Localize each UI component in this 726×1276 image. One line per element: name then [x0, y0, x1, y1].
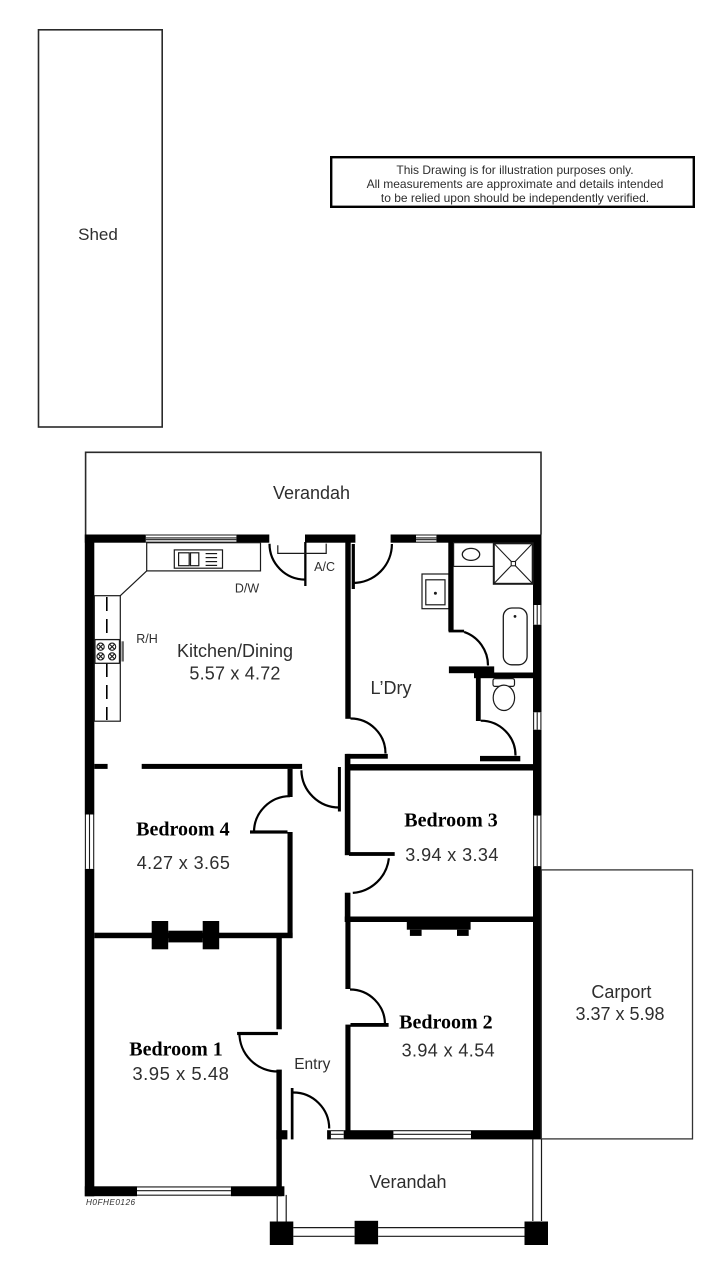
svg-text:Entry: Entry	[294, 1056, 330, 1073]
svg-text:Bedroom 2: Bedroom 2	[399, 1012, 493, 1034]
svg-text:Bedroom 1: Bedroom 1	[129, 1039, 223, 1061]
svg-text:This Drawing is for illustrati: This Drawing is for illustration purpose…	[396, 163, 633, 177]
svg-text:Verandah: Verandah	[273, 483, 350, 503]
svg-text:3.94 x 4.54: 3.94 x 4.54	[402, 1041, 495, 1061]
svg-text:R/H: R/H	[136, 632, 158, 646]
svg-text:Shed: Shed	[78, 225, 118, 244]
svg-text:D/W: D/W	[235, 582, 260, 596]
svg-text:L’Dry: L’Dry	[370, 678, 411, 698]
svg-text:4.27 x 3.65: 4.27 x 3.65	[137, 853, 230, 873]
svg-text:3.94 x 3.34: 3.94 x 3.34	[405, 845, 498, 865]
svg-text:All measurements are approxima: All measurements are approximate and det…	[367, 177, 664, 191]
svg-text:5.57 x 4.72: 5.57 x 4.72	[189, 664, 280, 684]
svg-text:Bedroom 4: Bedroom 4	[136, 819, 230, 841]
svg-text:Kitchen/Dining: Kitchen/Dining	[177, 641, 293, 661]
svg-text:3.95 x 5.48: 3.95 x 5.48	[132, 1063, 229, 1084]
svg-text:Bedroom 3: Bedroom 3	[404, 810, 498, 832]
svg-text:3.37 x 5.98: 3.37 x 5.98	[575, 1004, 664, 1024]
svg-text:Verandah: Verandah	[369, 1172, 446, 1192]
svg-text:A/C: A/C	[314, 560, 335, 574]
svg-text:H0FHE0126: H0FHE0126	[86, 1198, 136, 1207]
svg-text:Carport: Carport	[591, 982, 651, 1002]
svg-text:to be relied upon should be in: to be relied upon should be independentl…	[381, 191, 649, 205]
